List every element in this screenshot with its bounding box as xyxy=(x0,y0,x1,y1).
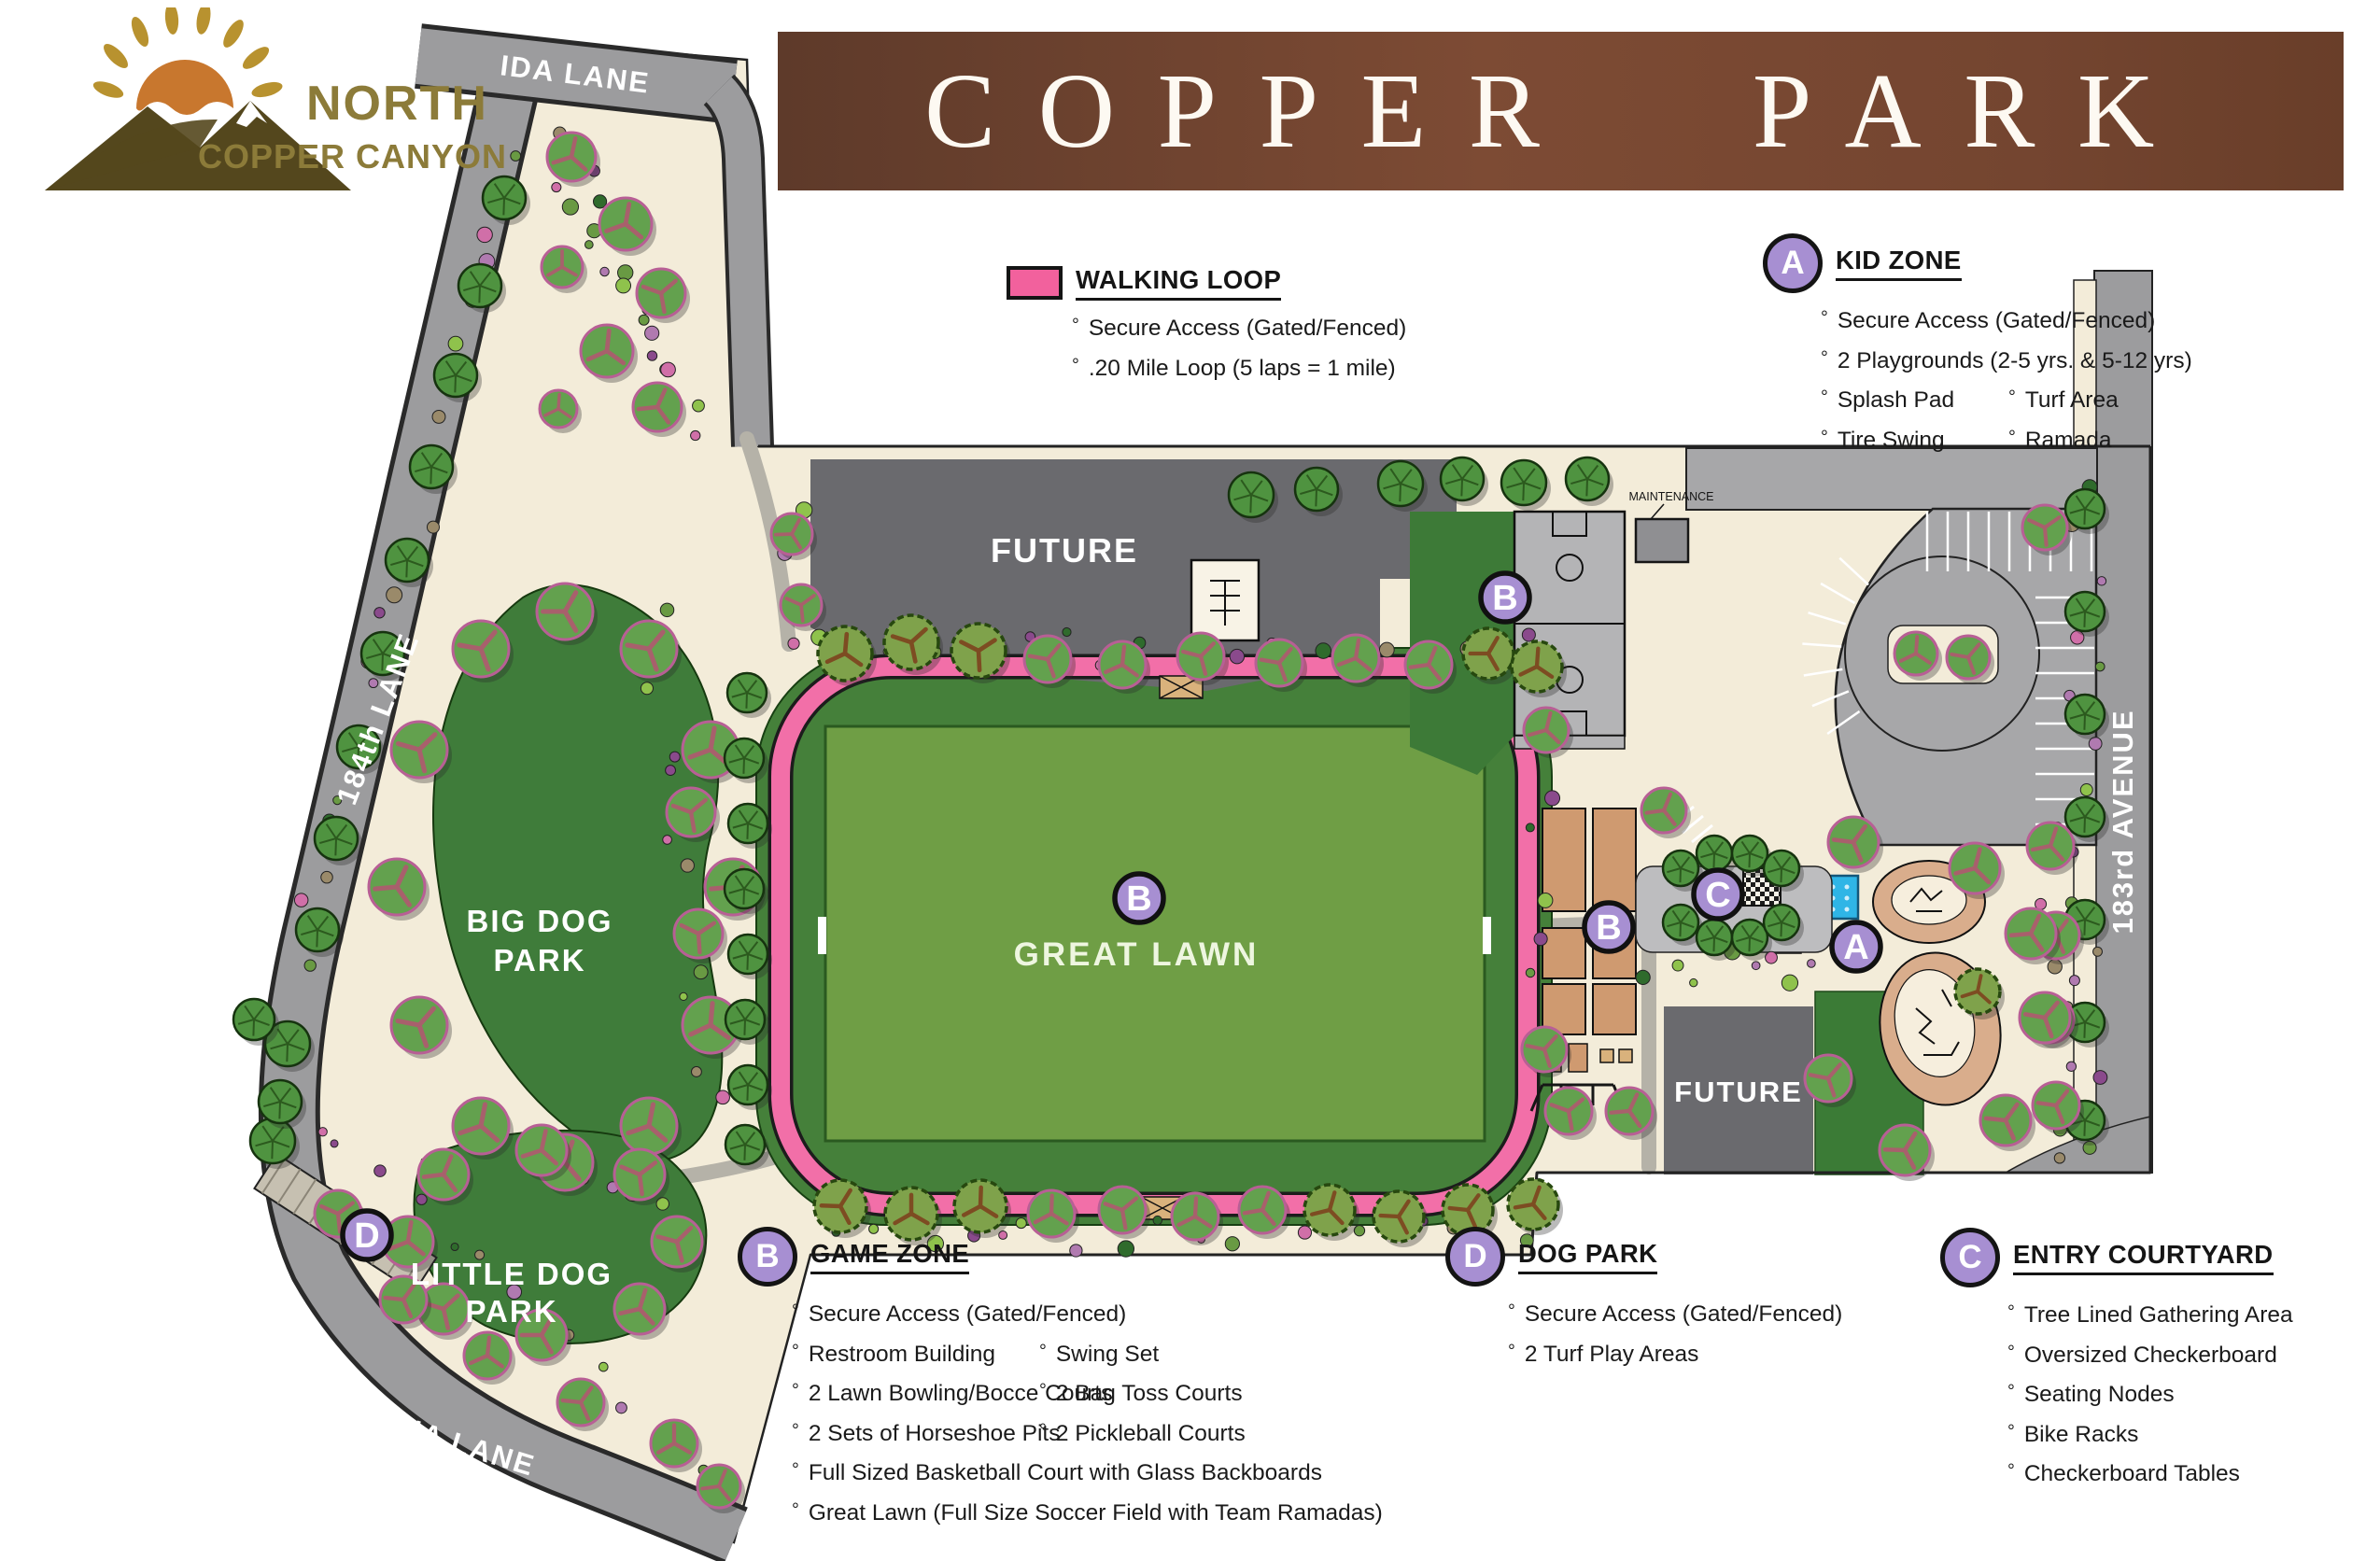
legend-item: Splash Pad xyxy=(1821,387,1954,413)
walking-loop-swatch xyxy=(1007,266,1063,300)
legend-item: 2 Pickleball Courts xyxy=(1039,1421,1246,1446)
shrub-icon xyxy=(1545,791,1560,806)
shrub-icon xyxy=(639,315,649,325)
soccer-goal-east xyxy=(1483,917,1491,954)
shrub-icon xyxy=(1522,628,1535,641)
shrub-icon xyxy=(1230,649,1244,663)
great-lawn-field xyxy=(825,726,1485,1141)
shrub-icon xyxy=(294,893,308,907)
shrub-icon xyxy=(694,965,708,979)
shrub-icon xyxy=(669,752,680,762)
legend-game-zone: B GAME ZONE Secure Access (Gated/Fenced)… xyxy=(738,1227,1383,1531)
shrub-icon xyxy=(2069,976,2079,986)
zone-marker-letter: B xyxy=(1492,579,1517,618)
maintenance-building xyxy=(1636,519,1688,562)
area-label-great-lawn: GREAT LAWN xyxy=(1014,936,1260,973)
shrub-icon xyxy=(1534,933,1547,946)
site-plan: IDA LANE 184th LANE TINA LANE 183rd AVEN… xyxy=(0,0,2380,1561)
legend-item: .20 Mile Loop (5 laps = 1 mile) xyxy=(1072,356,1396,381)
legend-item: Secure Access (Gated/Fenced) xyxy=(792,1301,1126,1327)
legend-item: 2 Sets of Horseshoe Pits xyxy=(792,1421,1060,1446)
shrub-icon xyxy=(647,351,656,360)
shrub-icon xyxy=(448,336,463,351)
legend-item: Tire Swing xyxy=(1821,428,1945,453)
zone-marker-game_zone: B xyxy=(1115,874,1163,922)
shrub-icon xyxy=(1538,893,1553,908)
shrub-icon xyxy=(552,182,561,191)
legend-item: Secure Access (Gated/Fenced) xyxy=(1072,316,1406,341)
shrub-icon xyxy=(616,278,631,293)
entry-courtyard-marker: C xyxy=(1940,1228,2000,1287)
sun-icon xyxy=(92,7,285,115)
shrub-icon xyxy=(681,859,694,872)
shrub-icon xyxy=(2080,784,2092,796)
area-label-future-east: FUTURE xyxy=(1674,1076,1803,1108)
legend-item: Seating Nodes xyxy=(2007,1382,2175,1407)
shrub-icon xyxy=(661,362,676,377)
shrub-icon xyxy=(1526,823,1534,832)
legend-title: ENTRY COURTYARD xyxy=(2013,1240,2274,1275)
legend-title: DOG PARK xyxy=(1518,1239,1657,1274)
legend-item: Swing Set xyxy=(1039,1342,1159,1367)
zone-marker-kid_zone: A xyxy=(1832,922,1880,971)
legend-item: 2 Playgrounds (2-5 yrs. & 5-12 yrs) xyxy=(1821,348,2192,373)
north-copper-canyon-logo: NORTH COPPER CANYON xyxy=(26,7,549,208)
zone-marker-letter: D xyxy=(354,1216,379,1256)
shrub-icon xyxy=(2093,1071,2107,1085)
shrub-icon xyxy=(2093,947,2103,956)
shrub-icon xyxy=(387,587,402,603)
zone-marker-letter: A xyxy=(1843,928,1868,967)
shrub-icon xyxy=(1526,968,1535,977)
shrub-icon xyxy=(663,836,672,845)
shrub-icon xyxy=(331,1140,338,1147)
shrub-icon xyxy=(477,227,492,242)
legend-item: Full Sized Basketball Court with Glass B… xyxy=(792,1460,1322,1485)
shrub-icon xyxy=(2054,1153,2064,1163)
logo-subtitle: COPPER CANYON xyxy=(198,137,507,176)
shrub-icon xyxy=(1672,960,1683,971)
shrub-icon xyxy=(2095,662,2105,671)
legend-title: WALKING LOOP xyxy=(1076,265,1281,301)
shrub-icon xyxy=(593,195,606,208)
shrub-icon xyxy=(1063,627,1071,636)
legend-item: Great Lawn (Full Size Soccer Field with … xyxy=(792,1500,1383,1526)
legend-item: Secure Access (Gated/Fenced) xyxy=(1508,1301,1842,1327)
shrub-icon xyxy=(584,241,593,249)
shrub-icon xyxy=(1752,962,1760,970)
zone-marker-game_zone: B xyxy=(1481,573,1529,622)
legend-item: Bike Racks xyxy=(2007,1422,2138,1447)
area-label-little-dog-2: PARK xyxy=(465,1294,557,1329)
legend-item: Tree Lined Gathering Area xyxy=(2007,1302,2293,1328)
shrub-icon xyxy=(1690,978,1697,986)
shrub-icon xyxy=(304,960,316,971)
legend-item: Oversized Checkerboard xyxy=(2007,1343,2277,1368)
legend-item: Restroom Building xyxy=(792,1342,995,1367)
soccer-goal-west xyxy=(818,917,826,954)
legend-item: Secure Access (Gated/Fenced) xyxy=(1821,308,2155,333)
shrub-icon xyxy=(427,521,439,533)
shrub-icon xyxy=(645,326,659,340)
shrub-icon xyxy=(374,1165,387,1177)
legend-entry-courtyard: C ENTRY COURTYARD Tree Lined Gathering A… xyxy=(1940,1228,2293,1493)
shrub-icon xyxy=(1636,970,1650,984)
area-label-big-dog-2: PARK xyxy=(493,943,585,977)
shrub-icon xyxy=(318,1128,327,1136)
shrub-icon xyxy=(641,682,653,695)
shrub-icon xyxy=(2066,1062,2076,1071)
shrub-icon xyxy=(616,1402,627,1413)
shrub-icon xyxy=(2097,577,2105,585)
zone-marker-dog_park: D xyxy=(343,1211,391,1259)
shrub-icon xyxy=(680,992,687,1000)
legend-item: Ramada xyxy=(2008,428,2111,453)
shrub-icon xyxy=(562,199,578,215)
legend-item: 2 Bag Toss Courts xyxy=(1039,1381,1243,1406)
shrub-icon xyxy=(1316,643,1331,659)
legend-item: Checkerboard Tables xyxy=(2007,1461,2240,1486)
shrub-icon xyxy=(693,400,705,412)
shrub-icon xyxy=(600,267,610,276)
shrub-icon xyxy=(451,1243,458,1250)
legend-walking-loop: WALKING LOOP Secure Access (Gated/Fenced… xyxy=(1007,265,1406,387)
shrub-icon xyxy=(660,603,673,616)
area-label-little-dog-1: LITTLE DOG xyxy=(411,1257,613,1291)
shrub-icon xyxy=(321,871,332,882)
legend-title: GAME ZONE xyxy=(810,1239,969,1274)
area-label-maintenance: MAINTENANCE xyxy=(1629,490,1714,503)
shrub-icon xyxy=(1153,1216,1162,1225)
game-zone-marker: B xyxy=(738,1227,797,1287)
legend-item: Turf Area xyxy=(2008,387,2119,413)
zone-marker-letter: B xyxy=(1126,879,1151,919)
shrub-icon xyxy=(1808,960,1816,968)
shrub-icon xyxy=(618,265,633,280)
legend-dog-park: D DOG PARK Secure Access (Gated/Fenced) … xyxy=(1445,1227,1842,1372)
logo-title: NORTH xyxy=(306,77,488,131)
kid-zone-marker: A xyxy=(1763,233,1823,293)
shrub-icon xyxy=(666,766,676,776)
legend-kid-zone: A KID ZONE Secure Access (Gated/Fenced) … xyxy=(1763,233,2192,458)
legend-title: KID ZONE xyxy=(1836,246,1962,281)
shrub-icon xyxy=(716,1090,730,1104)
area-label-big-dog-1: BIG DOG xyxy=(466,904,613,938)
page-title: COPPER PARK xyxy=(924,49,2197,173)
zone-marker-game_zone: B xyxy=(1584,903,1633,951)
shrub-icon xyxy=(416,1194,427,1204)
dog-park-marker: D xyxy=(1445,1227,1505,1287)
zone-marker-letter: C xyxy=(1705,876,1730,915)
shrub-icon xyxy=(691,430,700,440)
road-label-183rd: 183rd AVENUE xyxy=(2106,709,2139,934)
area-label-future-north: FUTURE xyxy=(991,531,1138,570)
shrub-icon xyxy=(374,608,385,618)
shrub-icon xyxy=(1781,975,1797,991)
legend-item: 2 Turf Play Areas xyxy=(1508,1342,1698,1367)
zone-marker-entry_courtyard: C xyxy=(1694,870,1742,919)
zone-marker-letter: B xyxy=(1596,908,1621,948)
shrub-icon xyxy=(599,1362,608,1371)
title-banner: COPPER PARK xyxy=(778,32,2344,190)
shrub-icon xyxy=(691,1067,701,1077)
shrub-icon xyxy=(788,638,799,649)
shrub-icon xyxy=(432,410,445,423)
restroom-building xyxy=(1191,560,1259,640)
